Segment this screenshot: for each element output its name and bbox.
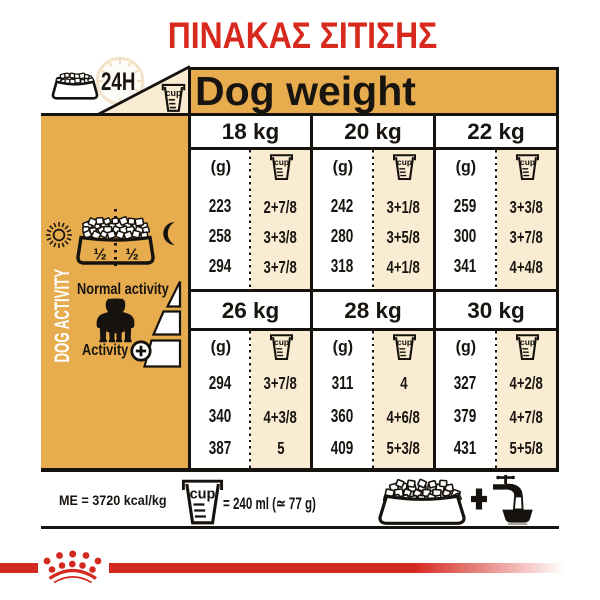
svg-text:½: ½	[125, 247, 138, 264]
svg-text:cup: cup	[274, 157, 289, 167]
svg-text:½: ½	[93, 247, 106, 264]
svg-text:cup: cup	[165, 88, 182, 98]
svg-text:cup: cup	[520, 337, 535, 347]
svg-text:cup: cup	[274, 337, 289, 347]
svg-text:cup: cup	[397, 337, 412, 347]
svg-text:cup: cup	[190, 487, 216, 503]
svg-text:cup: cup	[520, 157, 535, 167]
svg-text:cup: cup	[397, 157, 412, 167]
